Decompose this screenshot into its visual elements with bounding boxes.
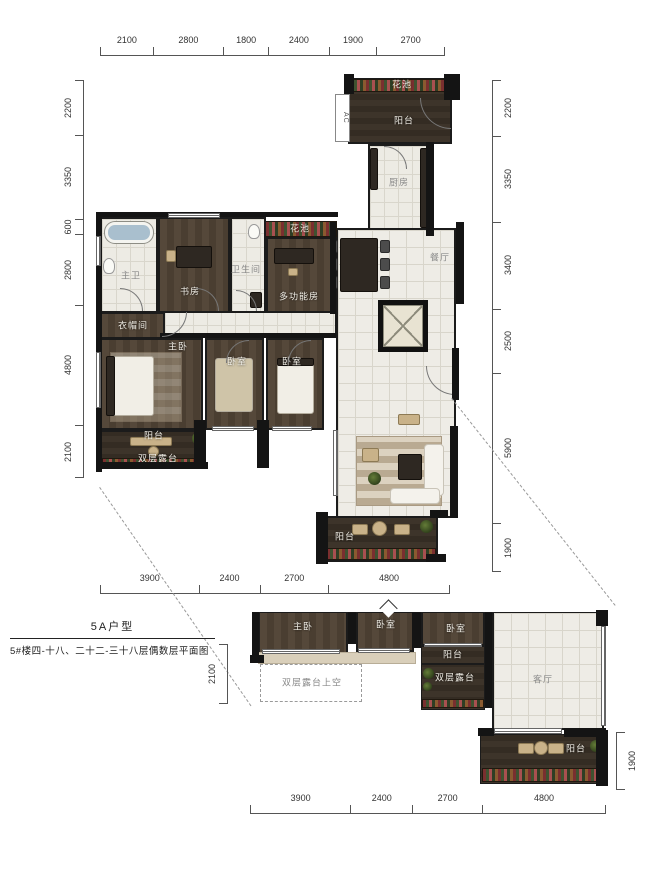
- window: [96, 236, 101, 266]
- dim-value: 600: [63, 219, 73, 234]
- lp-bottom-balcony-label: 阳台: [566, 745, 586, 754]
- top-balcony-label: 阳台: [394, 117, 414, 126]
- left-balcony-label: 阳台: [144, 432, 164, 441]
- dim-segment: 3900: [100, 585, 199, 594]
- dim-segment: 2100: [62, 425, 84, 478]
- plant: [420, 520, 433, 533]
- lp-room-master-bedroom: [258, 612, 348, 654]
- wall-pillar: [257, 420, 269, 468]
- callout-line-right: [451, 398, 615, 606]
- ac-unit: AC: [335, 94, 350, 142]
- toilet: [103, 258, 115, 274]
- dim-segment: 4800: [482, 805, 606, 814]
- lp-room-living: [492, 612, 604, 730]
- piano-stool: [288, 268, 298, 276]
- dim-segment: 1900: [492, 523, 514, 572]
- dim-value: 3350: [503, 169, 513, 189]
- wall-segment: [444, 74, 460, 100]
- flower-strip: [422, 699, 484, 708]
- lp-master-bedroom-label: 主卧: [293, 623, 313, 632]
- window: [333, 430, 338, 496]
- wall-segment: [252, 612, 259, 660]
- lp-terrace-void-label: 双层露台上空: [282, 679, 342, 688]
- dim-value: 5900: [503, 438, 513, 458]
- wall-segment: [478, 728, 494, 736]
- piano: [274, 248, 314, 264]
- flower-strip: [326, 548, 436, 560]
- dim-segment: 3350: [492, 136, 514, 222]
- wall-segment: [450, 426, 458, 518]
- balcony-chair: [548, 743, 564, 754]
- dining-label: 餐厅: [430, 254, 450, 263]
- lp-small-balcony-label: 阳台: [443, 651, 463, 660]
- window: [262, 649, 340, 654]
- balcony-table: [372, 521, 387, 536]
- lp-bedroom2-label: 卧室: [376, 621, 396, 630]
- dim-segment: 2400: [350, 805, 412, 814]
- dim-value: 2800: [154, 35, 223, 45]
- lp-bedroom3-label: 卧室: [446, 625, 466, 634]
- dim-segment: 3350: [62, 135, 84, 219]
- wall-segment: [430, 510, 448, 518]
- plant: [423, 682, 432, 691]
- dim-segment: 2400: [199, 585, 260, 594]
- wall-segment: [344, 74, 354, 94]
- dim-value: 2700: [261, 573, 329, 583]
- dim-segment: 4800: [328, 585, 450, 594]
- armchair: [362, 448, 379, 462]
- dim-value: 2100: [63, 442, 73, 462]
- title-divider: [10, 638, 215, 639]
- dim-value: 3350: [63, 167, 73, 187]
- dim-value: 2400: [351, 793, 412, 803]
- wall-segment: [426, 554, 446, 562]
- dim-segment: 3900: [250, 805, 350, 814]
- dim-value: 4800: [483, 793, 605, 803]
- sofa-horizontal: [390, 488, 440, 504]
- dining-chair: [380, 258, 390, 271]
- window: [96, 352, 101, 408]
- plan-description: 5#楼四-十八、二十二-三十八层偶数层平面图: [10, 643, 215, 657]
- window: [424, 643, 482, 647]
- toilet: [248, 224, 260, 239]
- dim-value: 2400: [269, 35, 328, 45]
- dim-segment: 2700: [412, 805, 482, 814]
- wall-segment: [412, 612, 421, 648]
- dim-value: 2100: [207, 664, 217, 684]
- dim-segment: 2700: [376, 47, 445, 56]
- lower-dim-right: 1900: [616, 732, 638, 790]
- wall-pillar: [596, 610, 608, 626]
- lp-living-label: 客厅: [533, 676, 553, 685]
- master-bath-label: 主卫: [121, 272, 141, 281]
- dim-segment: 4800: [62, 305, 84, 426]
- headboard: [106, 356, 115, 416]
- wall-segment: [96, 462, 208, 469]
- dim-value: 2200: [503, 98, 513, 118]
- study-desk: [176, 246, 212, 268]
- plan-title: 5A户型: [10, 618, 215, 634]
- wall-segment: [160, 333, 336, 338]
- wall-pillar: [250, 655, 264, 663]
- dim-value: 2800: [63, 260, 73, 280]
- dim-value: 2100: [101, 35, 153, 45]
- dim-segment: 5900: [492, 373, 514, 524]
- flower-strip: [482, 768, 604, 782]
- title-block: 5A户型 5#楼四-十八、二十二-三十八层偶数层平面图: [10, 618, 215, 657]
- dim-value: 1900: [330, 35, 377, 45]
- plant: [368, 472, 381, 485]
- lower-dims-bottom: 3900 2400 2700 4800: [250, 792, 606, 814]
- balcony-chair: [394, 524, 410, 535]
- dim-segment: 2100: [206, 644, 228, 704]
- dim-value: 2400: [200, 573, 260, 583]
- wall-segment: [426, 142, 434, 236]
- window: [494, 728, 562, 734]
- lp-room-bedroom2: [356, 612, 414, 652]
- dim-segment: 2200: [492, 80, 514, 136]
- dining-table: [340, 238, 378, 292]
- wall-segment: [348, 612, 356, 644]
- flower-bed-mid-label: 花池: [290, 225, 310, 234]
- dim-value: 3400: [503, 255, 513, 275]
- dining-chair: [380, 276, 390, 289]
- upper-dims-left: 2200 3350 600 2800 4800 2100: [62, 80, 84, 478]
- callout-line-left: [99, 487, 251, 706]
- dim-segment: 2400: [268, 47, 328, 56]
- dim-segment: 2800: [153, 47, 223, 56]
- floorplan-canvas: 2100 2800 1800 2400 1900 2700 2200 3350 …: [0, 0, 670, 884]
- wall-segment: [456, 222, 464, 304]
- dim-segment: 2500: [492, 309, 514, 373]
- dim-segment: 1800: [223, 47, 268, 56]
- study-chair: [166, 250, 176, 262]
- dim-segment: 1900: [616, 732, 638, 790]
- dim-segment: 3400: [492, 222, 514, 309]
- dim-segment: 600: [62, 219, 84, 234]
- flower-bed-top-label: 花池: [392, 81, 412, 90]
- window: [168, 213, 220, 218]
- dim-segment: 2200: [62, 80, 84, 135]
- dim-value: 1900: [627, 751, 637, 771]
- wall-pillar: [194, 420, 206, 468]
- dim-segment: 1900: [329, 47, 377, 56]
- dim-value: 1900: [503, 538, 513, 558]
- kitchen-label: 厨房: [389, 179, 409, 188]
- console-table: [398, 414, 420, 425]
- upper-dims-bottom: 3900 2400 2700 4800: [100, 572, 450, 594]
- dim-value: 3900: [251, 793, 350, 803]
- dim-value: 3900: [101, 573, 199, 583]
- dim-segment: 2100: [100, 47, 153, 56]
- dim-value: 2200: [63, 98, 73, 118]
- balcony-chair: [518, 743, 534, 754]
- bathtub: [105, 222, 153, 243]
- dim-value: 2700: [377, 35, 444, 45]
- elevator-shaft: [378, 300, 428, 352]
- window: [601, 626, 606, 726]
- window: [272, 426, 312, 431]
- wall-segment: [330, 222, 336, 314]
- lp-terrace-label: 双层露台: [435, 674, 475, 683]
- wall-pillar: [596, 730, 608, 786]
- plant: [423, 668, 434, 679]
- dim-value: 4800: [63, 355, 73, 375]
- coffee-table: [398, 454, 422, 480]
- dim-value: 2700: [413, 793, 482, 803]
- window: [358, 648, 410, 653]
- bottom-balcony-label: 阳台: [335, 533, 355, 542]
- lower-dim-left: 2100: [206, 644, 228, 704]
- dim-value: 1800: [224, 35, 268, 45]
- kitchen-stove: [370, 148, 378, 190]
- wall-segment: [485, 612, 492, 708]
- wall-segment: [452, 348, 459, 400]
- window: [212, 426, 254, 431]
- bath2-label: 卫生间: [231, 266, 261, 275]
- balcony-table: [534, 741, 548, 755]
- closet-label: 衣帽间: [118, 322, 148, 331]
- dining-chair: [380, 240, 390, 253]
- dim-value: 2500: [503, 331, 513, 351]
- upper-dims-top: 2100 2800 1800 2400 1900 2700: [100, 34, 445, 56]
- upper-dims-right: 2200 3350 3400 2500 5900 1900: [492, 80, 514, 572]
- dim-value: 4800: [329, 573, 449, 583]
- multifunction-label: 多功能房: [279, 293, 319, 302]
- master-bedroom-label: 主卧: [168, 343, 188, 352]
- wall-segment: [316, 512, 328, 564]
- dim-segment: 2800: [62, 234, 84, 304]
- dim-segment: 2700: [260, 585, 329, 594]
